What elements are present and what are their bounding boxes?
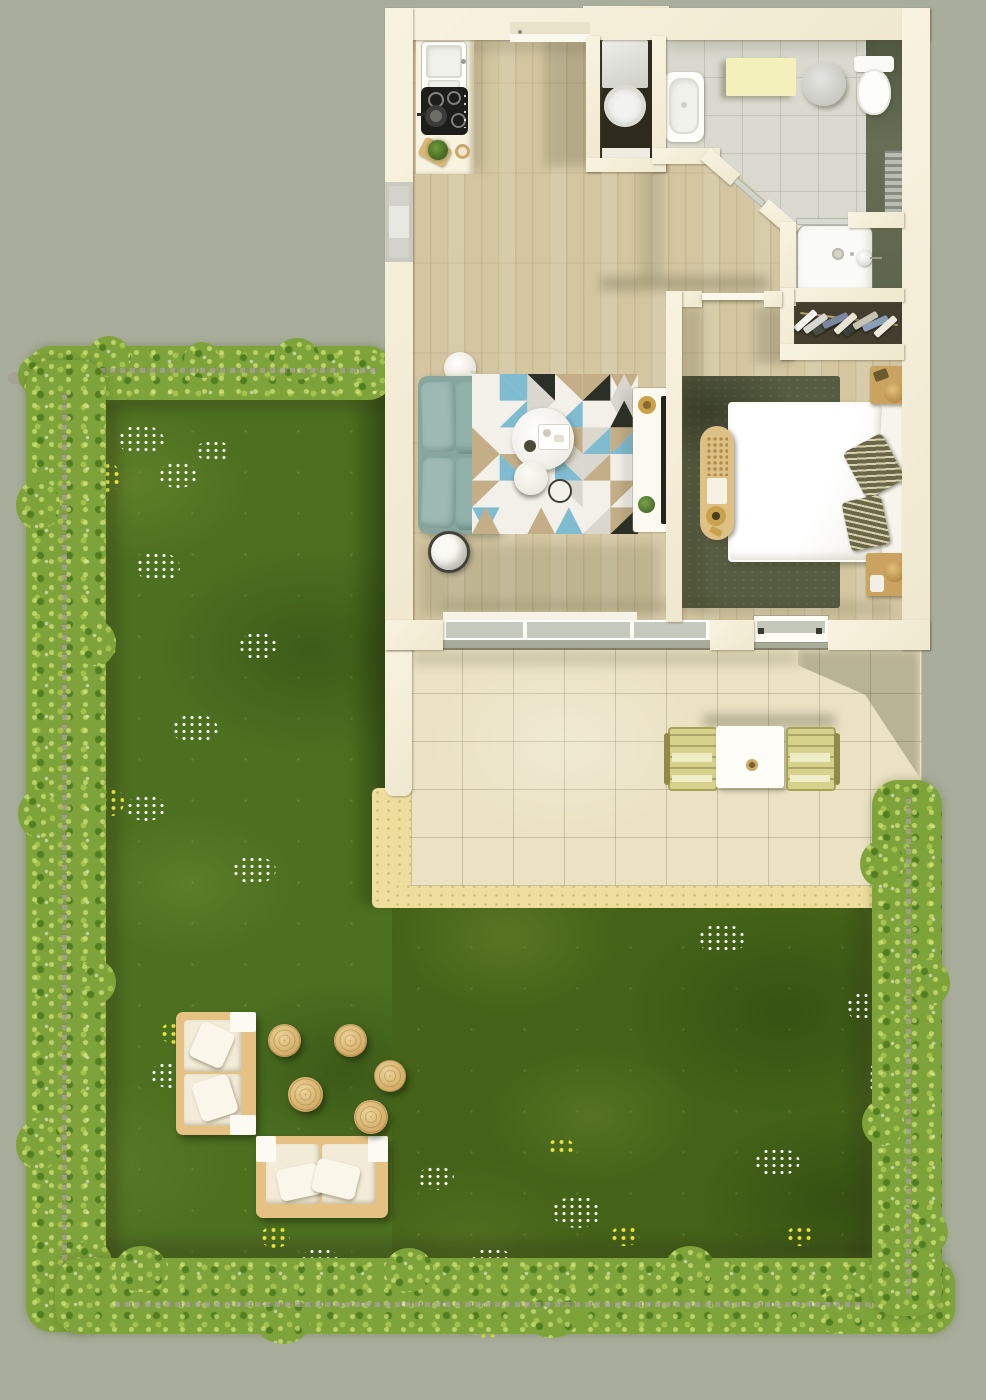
armrest-pad — [256, 1136, 276, 1162]
flower-cluster-yellow — [548, 1138, 574, 1156]
bowl — [455, 144, 470, 159]
flower-cluster — [418, 1166, 454, 1190]
bath-bench-yellow[interactable] — [726, 58, 796, 96]
round-wood-stool-5[interactable] — [354, 1100, 388, 1134]
flower-cluster — [754, 1148, 800, 1176]
burner — [447, 91, 461, 105]
shower-glass-door[interactable] — [796, 218, 850, 225]
hedge-blob — [115, 1246, 167, 1292]
hedge-blob — [910, 960, 950, 1006]
hedge-right — [872, 780, 942, 1316]
bench[interactable] — [700, 426, 734, 540]
console-plant — [638, 496, 655, 513]
entrance-door-leaf — [510, 34, 590, 42]
washing-machine-drum — [604, 85, 646, 127]
chair-strap — [672, 753, 712, 762]
pan — [425, 105, 447, 127]
cooktop-knobs — [464, 92, 466, 128]
hedge-blob — [525, 1292, 579, 1338]
washbasin[interactable] — [664, 72, 704, 142]
flower-cluster — [172, 714, 218, 744]
coffee-table-small[interactable] — [514, 461, 548, 495]
chair-strap — [672, 775, 712, 782]
media-console[interactable] — [633, 388, 669, 532]
armrest-pad — [230, 1012, 256, 1032]
hedge-blob — [274, 338, 320, 380]
bench-texture — [706, 436, 728, 476]
nightstand-item — [873, 368, 890, 382]
tray-item — [543, 429, 551, 437]
table-knot — [746, 759, 758, 771]
wall-utility-left — [586, 36, 600, 172]
stone-wall-line — [62, 390, 67, 1300]
garden-low-wall — [385, 648, 412, 796]
wall-living-bedroom-divider — [666, 291, 682, 622]
flower-cluster — [238, 632, 278, 660]
flower-cluster-yellow — [786, 1226, 814, 1246]
chair-arm — [834, 733, 840, 785]
door-mullion — [630, 620, 634, 640]
stone-wall-line — [115, 1302, 925, 1307]
flower-cluster — [158, 462, 198, 488]
flower-cluster — [118, 425, 164, 455]
basin-drain — [681, 102, 687, 108]
hanging-clothes[interactable] — [794, 302, 903, 344]
hedge-blob — [665, 1246, 715, 1290]
round-wood-stool-1[interactable] — [268, 1024, 301, 1057]
shower-arm — [870, 257, 882, 259]
hedge-blob — [16, 1120, 62, 1170]
drain-dot — [850, 252, 854, 256]
hedge-blob — [908, 1210, 948, 1254]
hedge-blob — [16, 480, 60, 530]
bath-stool[interactable] — [802, 62, 846, 106]
flower-cluster — [196, 440, 230, 462]
flower-cluster — [232, 856, 276, 884]
hedge-blob — [862, 1100, 904, 1146]
entrance-door[interactable] — [510, 22, 590, 42]
bench-item — [709, 525, 723, 537]
drum-side-table[interactable] — [428, 531, 470, 573]
hedge-blob — [815, 1288, 867, 1334]
garden-chair-right[interactable] — [786, 727, 836, 791]
wall-closet-top — [780, 288, 904, 302]
garden-sofa-horizontal[interactable] — [256, 1136, 388, 1218]
hedge-blob — [76, 960, 116, 1004]
garden-chair-left[interactable] — [668, 727, 718, 791]
stone-wall-line — [906, 794, 911, 1294]
flower-cluster — [698, 924, 746, 954]
sliding-glass-door[interactable] — [443, 620, 710, 640]
window-stop — [758, 628, 764, 634]
washing-machine[interactable] — [602, 40, 648, 88]
floor-shadow — [682, 308, 702, 608]
round-wood-stool-3[interactable] — [374, 1060, 406, 1092]
wall-bedroom-top-b — [764, 291, 782, 307]
bedroom-door-open[interactable] — [702, 293, 764, 300]
door-mullion — [443, 620, 446, 640]
kitchen-sink[interactable] — [422, 42, 466, 92]
window-left-wall[interactable] — [385, 182, 413, 262]
window-glass — [757, 621, 825, 633]
round-wood-stool-4[interactable] — [288, 1077, 323, 1112]
flower-cluster — [552, 1196, 602, 1228]
hedge-blob — [385, 1248, 433, 1292]
sink-basin — [426, 45, 462, 78]
double-bed[interactable] — [728, 402, 906, 562]
hedge-blob — [860, 840, 904, 888]
wall-bottom-b — [710, 620, 754, 650]
wall-right — [902, 8, 930, 650]
hedge-blob — [74, 620, 116, 666]
wall-closet-bottom — [780, 344, 904, 360]
hedge-left — [26, 360, 106, 1332]
flower-cluster-yellow — [610, 1226, 640, 1246]
door-handle — [518, 30, 522, 34]
wall-bottom-c — [828, 620, 930, 650]
flower-cluster — [126, 795, 166, 821]
wall-bottom-a — [385, 620, 443, 650]
pan-handle — [417, 113, 426, 116]
armrest-pad — [368, 1136, 388, 1162]
wall-left — [385, 8, 413, 650]
hedge-blob — [18, 790, 58, 838]
door-mullion — [523, 620, 527, 640]
floor-plan-canvas — [0, 0, 986, 1400]
side-stool-small[interactable] — [548, 479, 572, 503]
flower-cluster — [136, 552, 180, 582]
tray — [538, 424, 570, 450]
shower-drain — [832, 248, 844, 260]
flower-cluster-yellow — [260, 1226, 290, 1248]
window-stop — [816, 628, 822, 634]
bowl-dark — [524, 440, 536, 452]
hedge-bottom — [55, 1258, 955, 1334]
garden-sofa-vertical[interactable] — [176, 1012, 256, 1135]
wall-shower-topright — [848, 212, 904, 228]
window-glass — [389, 186, 409, 258]
nightstand-bottom[interactable] — [866, 553, 906, 596]
coffee-table-large[interactable] — [512, 408, 574, 470]
nightstand-cup — [870, 575, 884, 592]
terrace-top-shadow — [413, 650, 798, 666]
chair-strap — [790, 753, 830, 762]
faucet — [461, 59, 466, 64]
chair-strap — [790, 775, 830, 782]
floor-shadow — [640, 155, 664, 280]
tray-item — [554, 435, 564, 442]
speaker — [638, 396, 656, 414]
toilet-bowl — [857, 69, 891, 115]
potted-herb — [428, 140, 448, 160]
floor-shadow — [700, 600, 890, 616]
nightstand-top[interactable] — [870, 366, 906, 404]
cooktop[interactable] — [421, 87, 468, 135]
sofa-back-pillow — [421, 457, 457, 528]
terrace-table[interactable] — [716, 726, 784, 788]
round-wood-stool-2[interactable] — [334, 1024, 367, 1057]
chair-arm — [664, 733, 670, 785]
armrest-pad — [230, 1115, 256, 1135]
floor-shadow — [600, 276, 768, 291]
sofa-back-pillow — [421, 381, 457, 452]
bench-tray — [707, 478, 727, 504]
toilet[interactable] — [852, 56, 896, 116]
bedroom-window[interactable] — [754, 616, 828, 642]
bench-bowl — [706, 506, 726, 526]
